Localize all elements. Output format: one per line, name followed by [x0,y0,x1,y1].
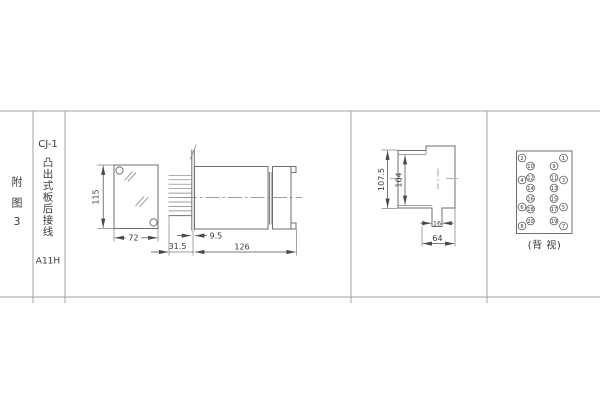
mounting-hole-top-left [116,167,123,174]
mounting-char-2: 出 [43,168,54,181]
terminal-9-number: 9 [552,164,555,170]
total-depth-dimension: 126 [193,230,296,256]
terminal-8-number: 8 [520,224,523,230]
terminal-3-number: 3 [562,178,565,184]
case-width-value: 64 [432,234,442,243]
terminal-16-number: 16 [527,196,533,202]
panel-offset-value: 9.5 [210,232,223,241]
side-view-drawing: 9.5 31.5 126 [151,145,302,256]
spec-column: CJ-1 凸 出 式 板 后 接 线 A11H [36,139,60,267]
glass-hatch-marks [125,172,149,208]
terminal-15-number: 15 [551,196,557,202]
mounting-hole-bottom-right [150,219,157,226]
inner-height-dimension: 104 [394,155,405,205]
mounting-char-6: 接 [43,214,54,227]
type-code-label: A11H [36,257,60,267]
terminal-10-number: 10 [527,164,533,170]
terminal-14-number: 14 [527,186,533,192]
terminal-7-number: 7 [562,224,565,230]
terminal-grid: 2468101214161820911131517191357 [518,154,567,230]
drawing-sheet: 附 图 3 CJ-1 凸 出 式 板 后 接 线 A11H 115 [0,0,600,400]
terminal-17-number: 17 [551,207,557,213]
front-height-value: 115 [91,189,100,204]
terminal-1-number: 1 [562,156,565,162]
terminal-19-number: 19 [551,219,557,225]
terminal-13-number: 13 [551,186,557,192]
slot-width-dimension: 16 [421,220,454,228]
terminal-block-outline [517,151,573,234]
front-view-drawing: 115 72 [91,165,158,243]
terminal-rear-view: 2468101214161820911131517191357 (背 视) [517,151,573,252]
front-height-dimension: 115 [91,165,114,229]
technical-drawing-svg: 附 图 3 CJ-1 凸 出 式 板 后 接 线 A11H 115 [0,0,600,400]
rear-cover-tab-bottom [291,223,296,229]
case-profile-drawing: 107.5 104 16 64 [377,146,459,247]
terminal-pins [169,175,192,215]
figure-label-column: 附 图 3 [12,175,23,229]
terminal-2-number: 2 [520,156,523,162]
terminal-6-number: 6 [520,205,523,211]
figure-label-char-1: 附 [12,175,23,189]
model-label: CJ-1 [38,139,58,150]
table-grid [0,111,600,303]
panel-offset-dimension: 9.5 [177,232,222,241]
terminal-4-number: 4 [520,178,523,184]
figure-label-char-2: 图 [12,197,23,210]
mounting-char-1: 凸 [43,157,54,169]
slot-width-value: 16 [433,220,441,228]
rear-cover-tab-top [291,167,296,173]
case-outline [398,146,455,227]
relay-front-outline [114,165,158,229]
terminal-12-number: 12 [527,175,533,181]
terminal-5-number: 5 [562,205,565,211]
figure-label-number: 3 [14,215,21,228]
mounting-char-5: 后 [43,203,54,215]
outer-height-value: 107.5 [377,168,386,191]
rear-view-label: (背 视) [528,239,561,252]
mounting-char-4: 板 [43,191,54,204]
front-width-value: 72 [128,234,138,243]
total-depth-value: 126 [234,242,249,251]
front-depth-value: 31.5 [169,242,187,251]
mounting-char-3: 式 [43,179,54,192]
terminal-20-number: 20 [527,219,533,225]
terminal-11-number: 11 [551,175,557,181]
mounting-panel [190,145,196,231]
mounting-char-7: 线 [43,225,54,238]
inner-height-value: 104 [394,172,403,187]
front-width-dimension: 72 [114,229,158,243]
panel-break-mark [190,145,196,160]
terminal-18-number: 18 [527,207,533,213]
